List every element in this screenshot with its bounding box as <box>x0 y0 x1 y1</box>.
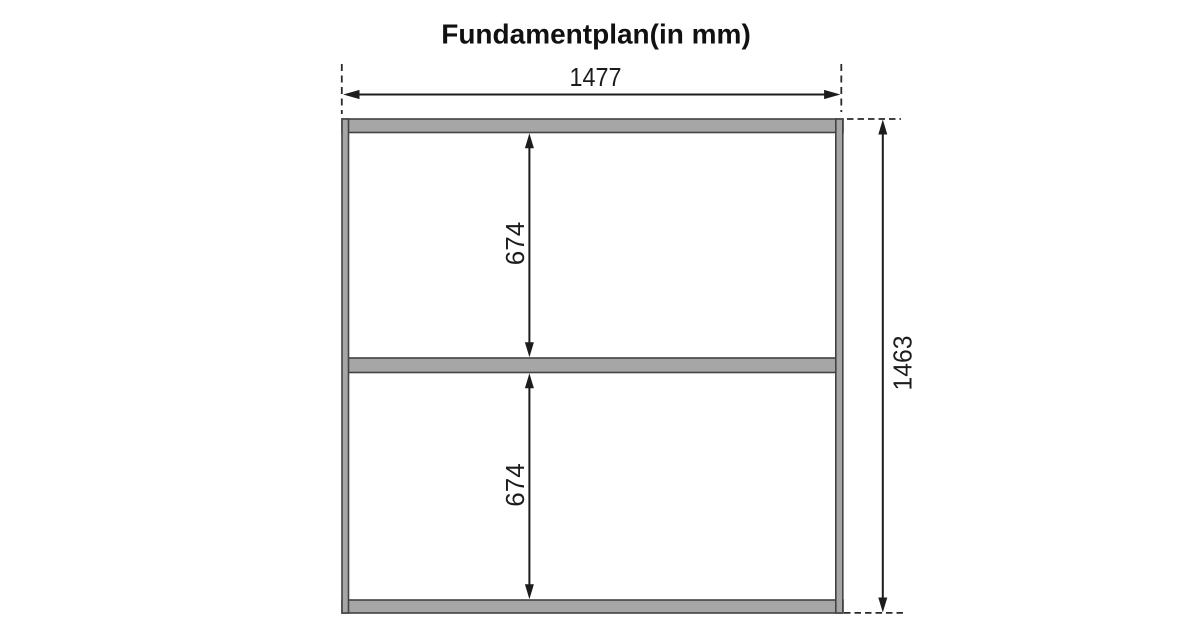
svg-text:674: 674 <box>500 222 530 265</box>
svg-text:Fundamentplan(in mm): Fundamentplan(in mm) <box>441 19 751 50</box>
svg-text:674: 674 <box>500 463 530 506</box>
svg-text:1477: 1477 <box>570 62 622 92</box>
svg-text:1463: 1463 <box>888 336 918 391</box>
